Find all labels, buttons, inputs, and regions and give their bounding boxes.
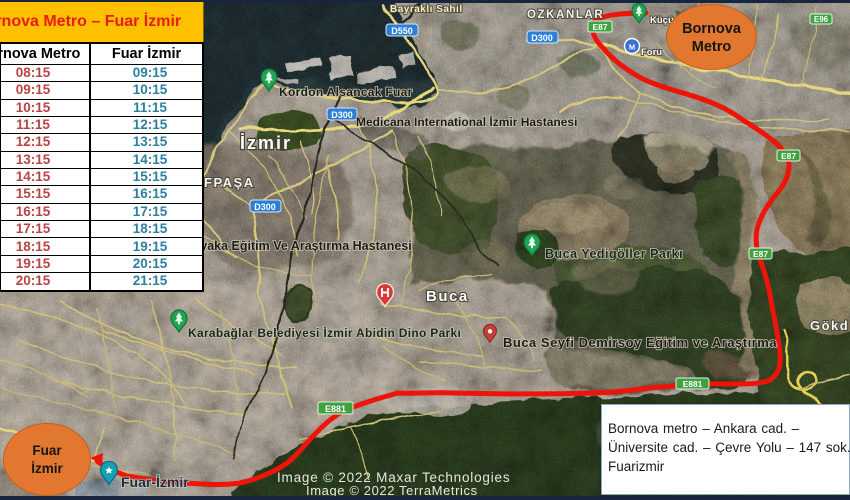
- svg-text:Karabağlar Belediyesi İzmir Ab: Karabağlar Belediyesi İzmir Abidin Dino …: [188, 325, 461, 340]
- svg-text:Medicana International İzmir H: Medicana International İzmir Hastanesi: [356, 114, 577, 129]
- svg-text:E881: E881: [683, 379, 703, 389]
- svg-text:D550: D550: [391, 26, 413, 36]
- svg-text:D300: D300: [331, 110, 353, 120]
- svg-text:Buca: Buca: [426, 288, 469, 305]
- svg-text:D300: D300: [254, 202, 276, 212]
- svg-text:E87: E87: [753, 249, 768, 259]
- svg-text:Buca Yedigöller Parkı: Buca Yedigöller Parkı: [545, 247, 683, 261]
- svg-text:İzmir: İzmir: [240, 133, 292, 153]
- svg-text:E96: E96: [814, 15, 829, 24]
- svg-text:Foru: Foru: [641, 47, 662, 58]
- svg-text:Gökd: Gökd: [810, 318, 849, 333]
- svg-text:Bayraklı Sahil: Bayraklı Sahil: [390, 4, 463, 15]
- svg-text:FPAŞA: FPAŞA: [204, 175, 255, 190]
- svg-text:OZKANLAR: OZKANLAR: [527, 9, 604, 21]
- svg-text:zyaka Eğitim Ve Araştırma Hast: zyaka Eğitim Ve Araştırma Hastanesi: [194, 239, 412, 253]
- svg-text:Fuar-İzmir: Fuar-İzmir: [121, 474, 189, 490]
- svg-text:M: M: [629, 43, 635, 52]
- svg-text:Buca Seyfi Demirsoy Eğitim ve: Buca Seyfi Demirsoy Eğitim ve Araştırma: [503, 335, 777, 350]
- svg-text:E87: E87: [781, 151, 796, 161]
- svg-text:E87: E87: [592, 22, 607, 32]
- svg-text:D300: D300: [531, 33, 553, 43]
- svg-text:E881: E881: [325, 404, 346, 414]
- svg-text:Kordon Alsancak Fuar: Kordon Alsancak Fuar: [279, 85, 413, 99]
